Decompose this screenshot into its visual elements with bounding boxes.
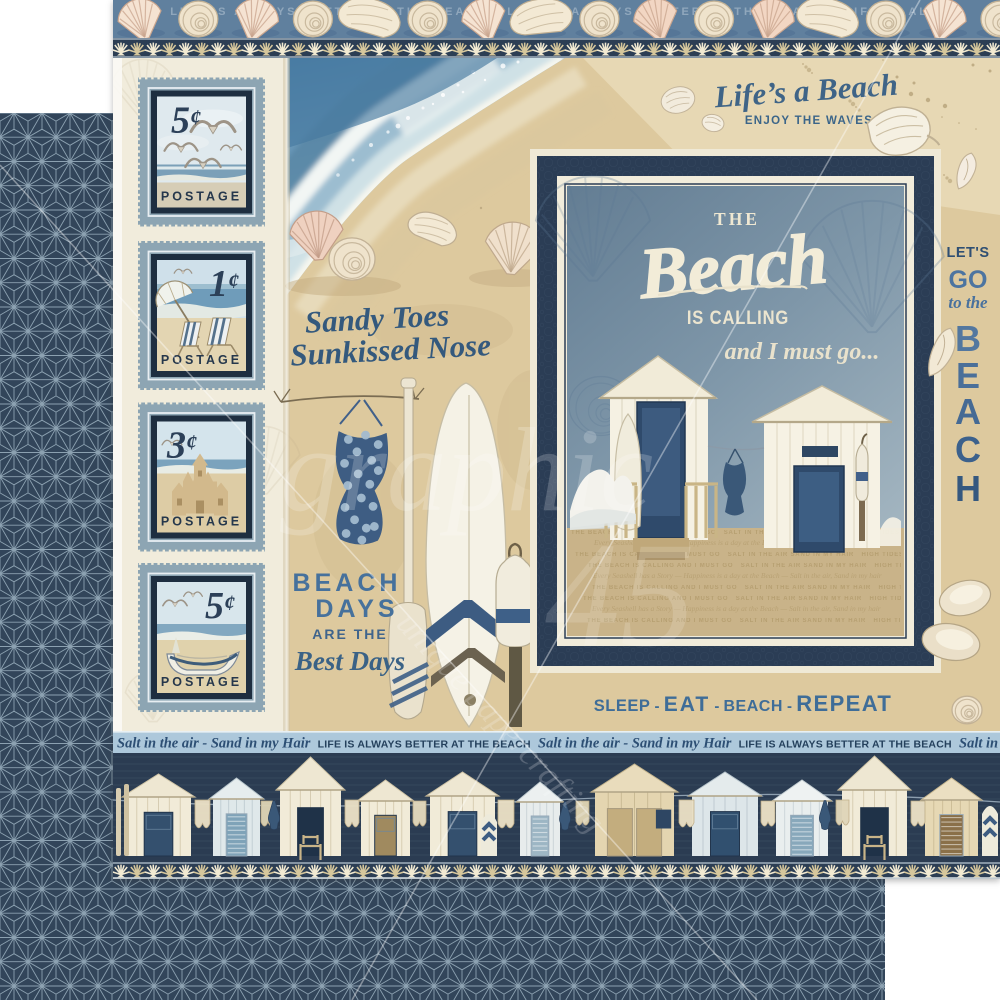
svg-text:45: 45 [545,512,695,678]
